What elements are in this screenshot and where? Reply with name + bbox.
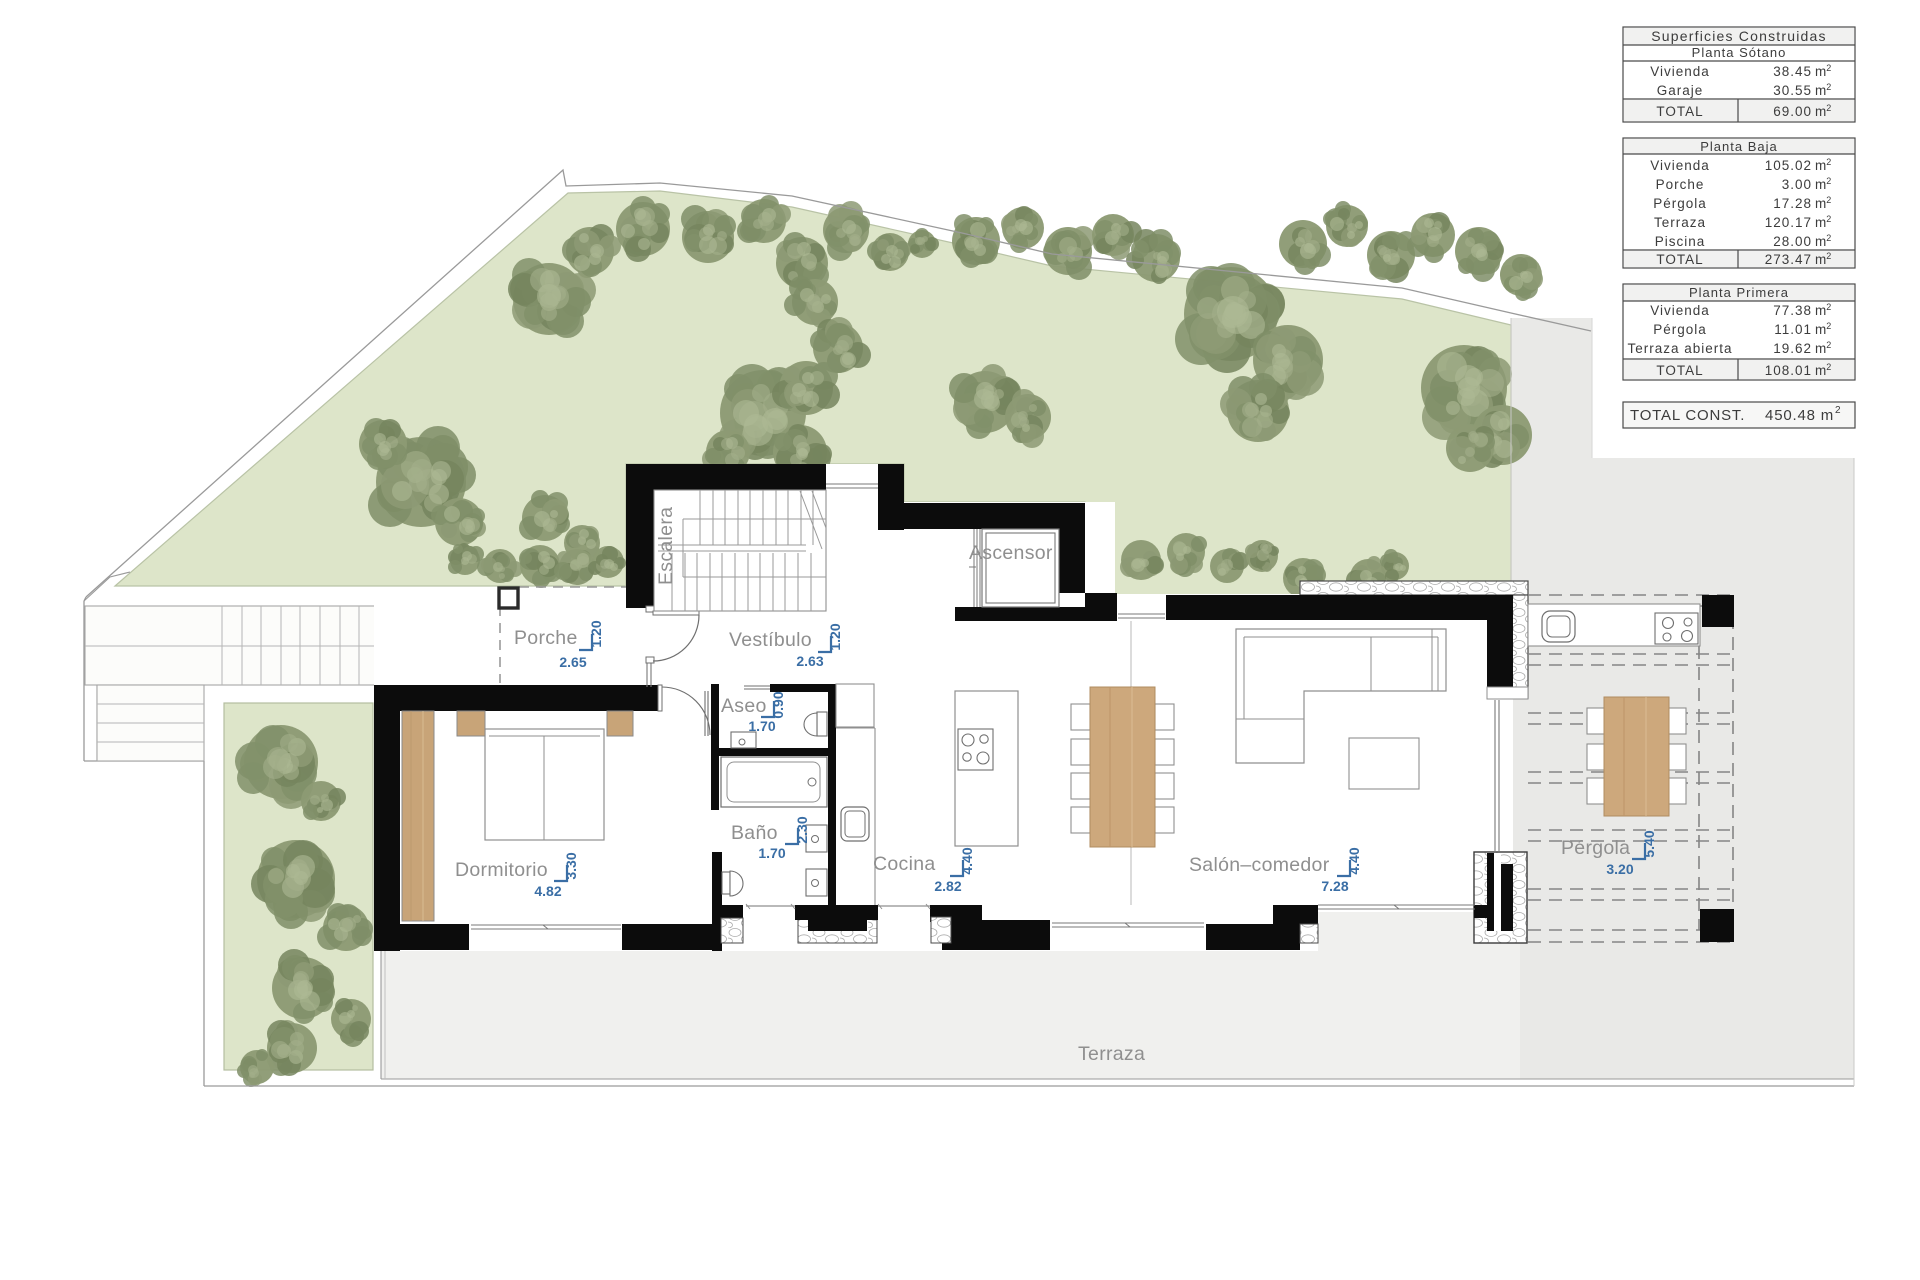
- svg-text:Piscina: Piscina: [1655, 234, 1706, 249]
- svg-text:TOTAL: TOTAL: [1656, 104, 1703, 119]
- svg-text:Garaje: Garaje: [1657, 83, 1704, 98]
- svg-text:105.02: 105.02: [1765, 158, 1812, 173]
- svg-text:38.45: 38.45: [1773, 64, 1812, 79]
- svg-text:1.70: 1.70: [758, 845, 785, 861]
- svg-text:Planta Primera: Planta Primera: [1689, 285, 1789, 300]
- svg-text:Ascensor: Ascensor: [969, 542, 1053, 564]
- svg-text:Vivienda: Vivienda: [1650, 303, 1710, 318]
- svg-text:2.63: 2.63: [796, 653, 823, 669]
- svg-text:TOTAL: TOTAL: [1656, 252, 1703, 267]
- svg-text:Planta Baja: Planta Baja: [1700, 139, 1778, 154]
- svg-text:Terraza abierta: Terraza abierta: [1627, 341, 1732, 356]
- svg-text:450.48 m: 450.48 m: [1765, 407, 1834, 424]
- svg-text:Pérgola: Pérgola: [1653, 196, 1707, 211]
- svg-text:7.28: 7.28: [1321, 878, 1348, 894]
- svg-text:108.01: 108.01: [1765, 363, 1812, 378]
- svg-text:4.40: 4.40: [959, 847, 975, 874]
- svg-text:Terraza: Terraza: [1654, 215, 1706, 230]
- svg-text:3.20: 3.20: [1606, 861, 1633, 877]
- svg-text:Pérgola: Pérgola: [1653, 322, 1707, 337]
- svg-text:30.55: 30.55: [1773, 83, 1812, 98]
- svg-text:Porche: Porche: [1656, 177, 1705, 192]
- svg-text:1.70: 1.70: [748, 718, 775, 734]
- svg-text:Escalera: Escalera: [655, 507, 677, 585]
- svg-text:Superficies Construidas: Superficies Construidas: [1651, 28, 1826, 44]
- svg-text:Baño: Baño: [731, 822, 778, 844]
- svg-text:2.65: 2.65: [559, 654, 586, 670]
- svg-text:19.62: 19.62: [1773, 341, 1812, 356]
- svg-text:1.20: 1.20: [827, 623, 843, 650]
- svg-text:TOTAL: TOTAL: [1656, 363, 1703, 378]
- svg-text:0.90: 0.90: [770, 691, 786, 718]
- svg-text:Vivienda: Vivienda: [1650, 64, 1710, 79]
- svg-text:Terraza: Terraza: [1078, 1043, 1145, 1065]
- svg-text:TOTAL CONST.: TOTAL CONST.: [1630, 407, 1745, 424]
- svg-text:Cocina: Cocina: [873, 853, 936, 875]
- svg-text:Salón–comedor: Salón–comedor: [1189, 854, 1330, 876]
- svg-text:Planta Sótano: Planta Sótano: [1692, 45, 1787, 60]
- svg-text:2: 2: [1835, 405, 1841, 416]
- svg-text:Dormitorio: Dormitorio: [455, 859, 548, 881]
- svg-text:Vestíbulo: Vestíbulo: [729, 629, 812, 651]
- svg-text:273.47: 273.47: [1765, 252, 1812, 267]
- svg-text:77.38: 77.38: [1773, 303, 1812, 318]
- svg-text:2.82: 2.82: [934, 878, 961, 894]
- svg-text:4.82: 4.82: [534, 883, 561, 899]
- svg-text:3.30: 3.30: [563, 852, 579, 879]
- svg-text:2.30: 2.30: [794, 816, 810, 843]
- svg-text:69.00: 69.00: [1773, 104, 1812, 119]
- svg-text:Pérgola: Pérgola: [1561, 837, 1630, 859]
- svg-text:4.40: 4.40: [1346, 847, 1362, 874]
- svg-text:Vivienda: Vivienda: [1650, 158, 1710, 173]
- svg-text:3.00: 3.00: [1782, 177, 1812, 192]
- svg-text:Porche: Porche: [514, 627, 578, 649]
- svg-text:28.00: 28.00: [1773, 234, 1812, 249]
- svg-text:1.20: 1.20: [588, 620, 604, 647]
- svg-text:17.28: 17.28: [1773, 196, 1812, 211]
- svg-text:Aseo: Aseo: [721, 695, 767, 717]
- svg-text:5.40: 5.40: [1641, 830, 1657, 857]
- svg-text:11.01: 11.01: [1774, 322, 1812, 337]
- svg-text:120.17: 120.17: [1765, 215, 1812, 230]
